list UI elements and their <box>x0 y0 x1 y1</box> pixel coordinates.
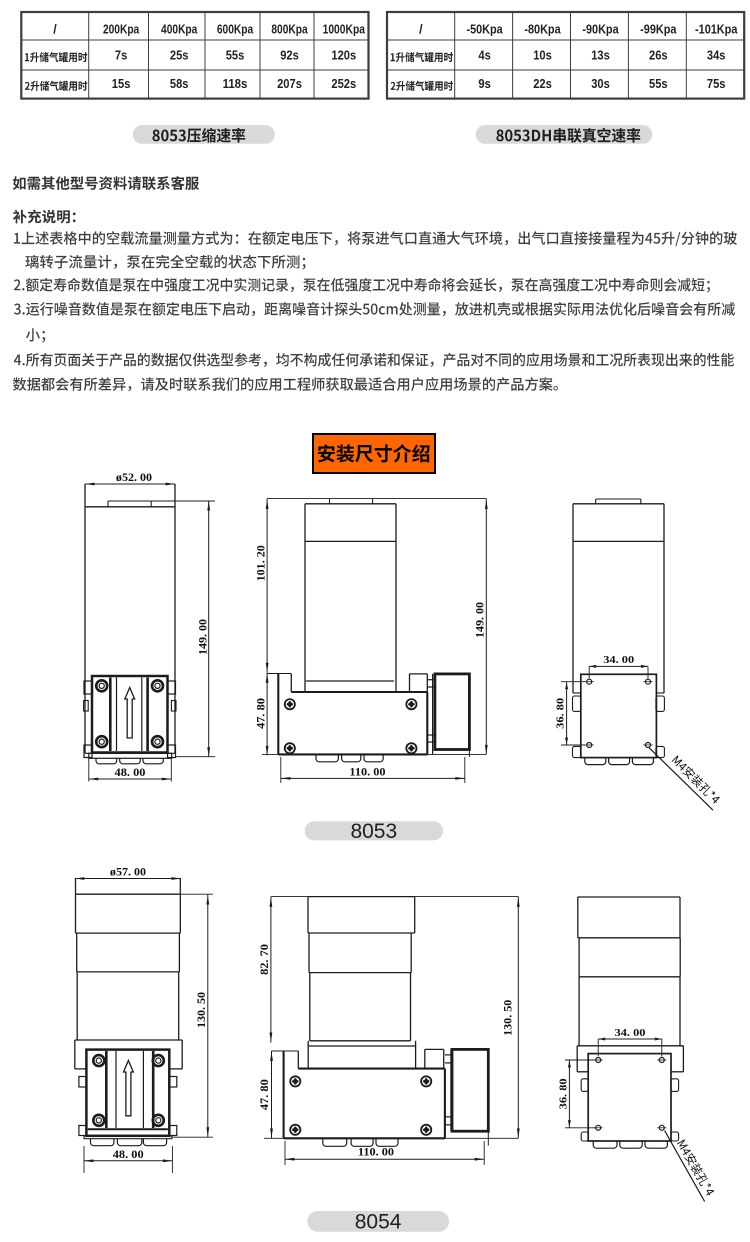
svg-text:7s: 7s <box>115 48 127 62</box>
svg-text:8054: 8054 <box>355 1211 402 1234</box>
svg-text:252s: 252s <box>331 77 356 91</box>
svg-text:48. 00: 48. 00 <box>115 765 146 779</box>
svg-text:36. 80: 36. 80 <box>557 1078 569 1109</box>
svg-text:30s: 30s <box>591 77 610 91</box>
svg-text:/: / <box>53 23 57 37</box>
svg-text:600Kpa: 600Kpa <box>217 23 254 37</box>
svg-text:110. 00: 110. 00 <box>358 1144 394 1158</box>
svg-text:120s: 120s <box>331 48 356 62</box>
svg-text:-99Kpa: -99Kpa <box>640 23 677 37</box>
svg-text:48. 00: 48. 00 <box>113 1147 144 1161</box>
svg-text:55s: 55s <box>649 77 668 91</box>
svg-text:82. 70: 82. 70 <box>257 944 271 975</box>
svg-text:25s: 25s <box>170 48 189 62</box>
svg-text:75s: 75s <box>707 77 726 91</box>
svg-text:47. 80: 47. 80 <box>257 1079 271 1110</box>
svg-text:-101Kpa: -101Kpa <box>695 23 738 37</box>
svg-text:149. 00: 149. 00 <box>472 602 486 638</box>
svg-text:130. 50: 130. 50 <box>194 992 208 1028</box>
svg-text:26s: 26s <box>649 48 668 62</box>
svg-text:34. 00: 34. 00 <box>603 654 634 666</box>
svg-text:8053: 8053 <box>350 820 397 843</box>
svg-text:10s: 10s <box>533 48 552 62</box>
svg-text:101. 20: 101. 20 <box>254 545 268 581</box>
svg-text:/: / <box>419 23 423 37</box>
svg-text:34s: 34s <box>707 48 726 62</box>
svg-text:1000Kpa: 1000Kpa <box>323 23 366 37</box>
svg-text:4s: 4s <box>478 48 490 62</box>
svg-text:47. 80: 47. 80 <box>254 698 268 729</box>
svg-text:92s: 92s <box>280 48 299 62</box>
svg-text:58s: 58s <box>170 77 189 91</box>
svg-text:22s: 22s <box>533 77 552 91</box>
svg-text:130. 50: 130. 50 <box>500 1000 514 1036</box>
svg-text:118s: 118s <box>223 77 248 91</box>
svg-text:13s: 13s <box>591 48 610 62</box>
svg-text:36. 80: 36. 80 <box>555 697 567 728</box>
svg-text:-80Kpa: -80Kpa <box>524 23 561 37</box>
svg-text:110. 00: 110. 00 <box>349 765 385 779</box>
svg-text:ø57. 00: ø57. 00 <box>110 865 146 879</box>
svg-text:55s: 55s <box>226 48 245 62</box>
svg-text:207s: 207s <box>277 77 302 91</box>
svg-text:400Kpa: 400Kpa <box>161 23 198 37</box>
svg-text:149. 00: 149. 00 <box>196 619 210 655</box>
svg-text:15s: 15s <box>112 77 131 91</box>
svg-text:9s: 9s <box>478 77 490 91</box>
svg-text:200Kpa: 200Kpa <box>103 23 140 37</box>
svg-text:ø52. 00: ø52. 00 <box>116 470 152 484</box>
svg-text:-50Kpa: -50Kpa <box>466 23 503 37</box>
svg-text:-90Kpa: -90Kpa <box>582 23 619 37</box>
svg-text:800Kpa: 800Kpa <box>271 23 308 37</box>
svg-text:34. 00: 34. 00 <box>615 1027 646 1039</box>
